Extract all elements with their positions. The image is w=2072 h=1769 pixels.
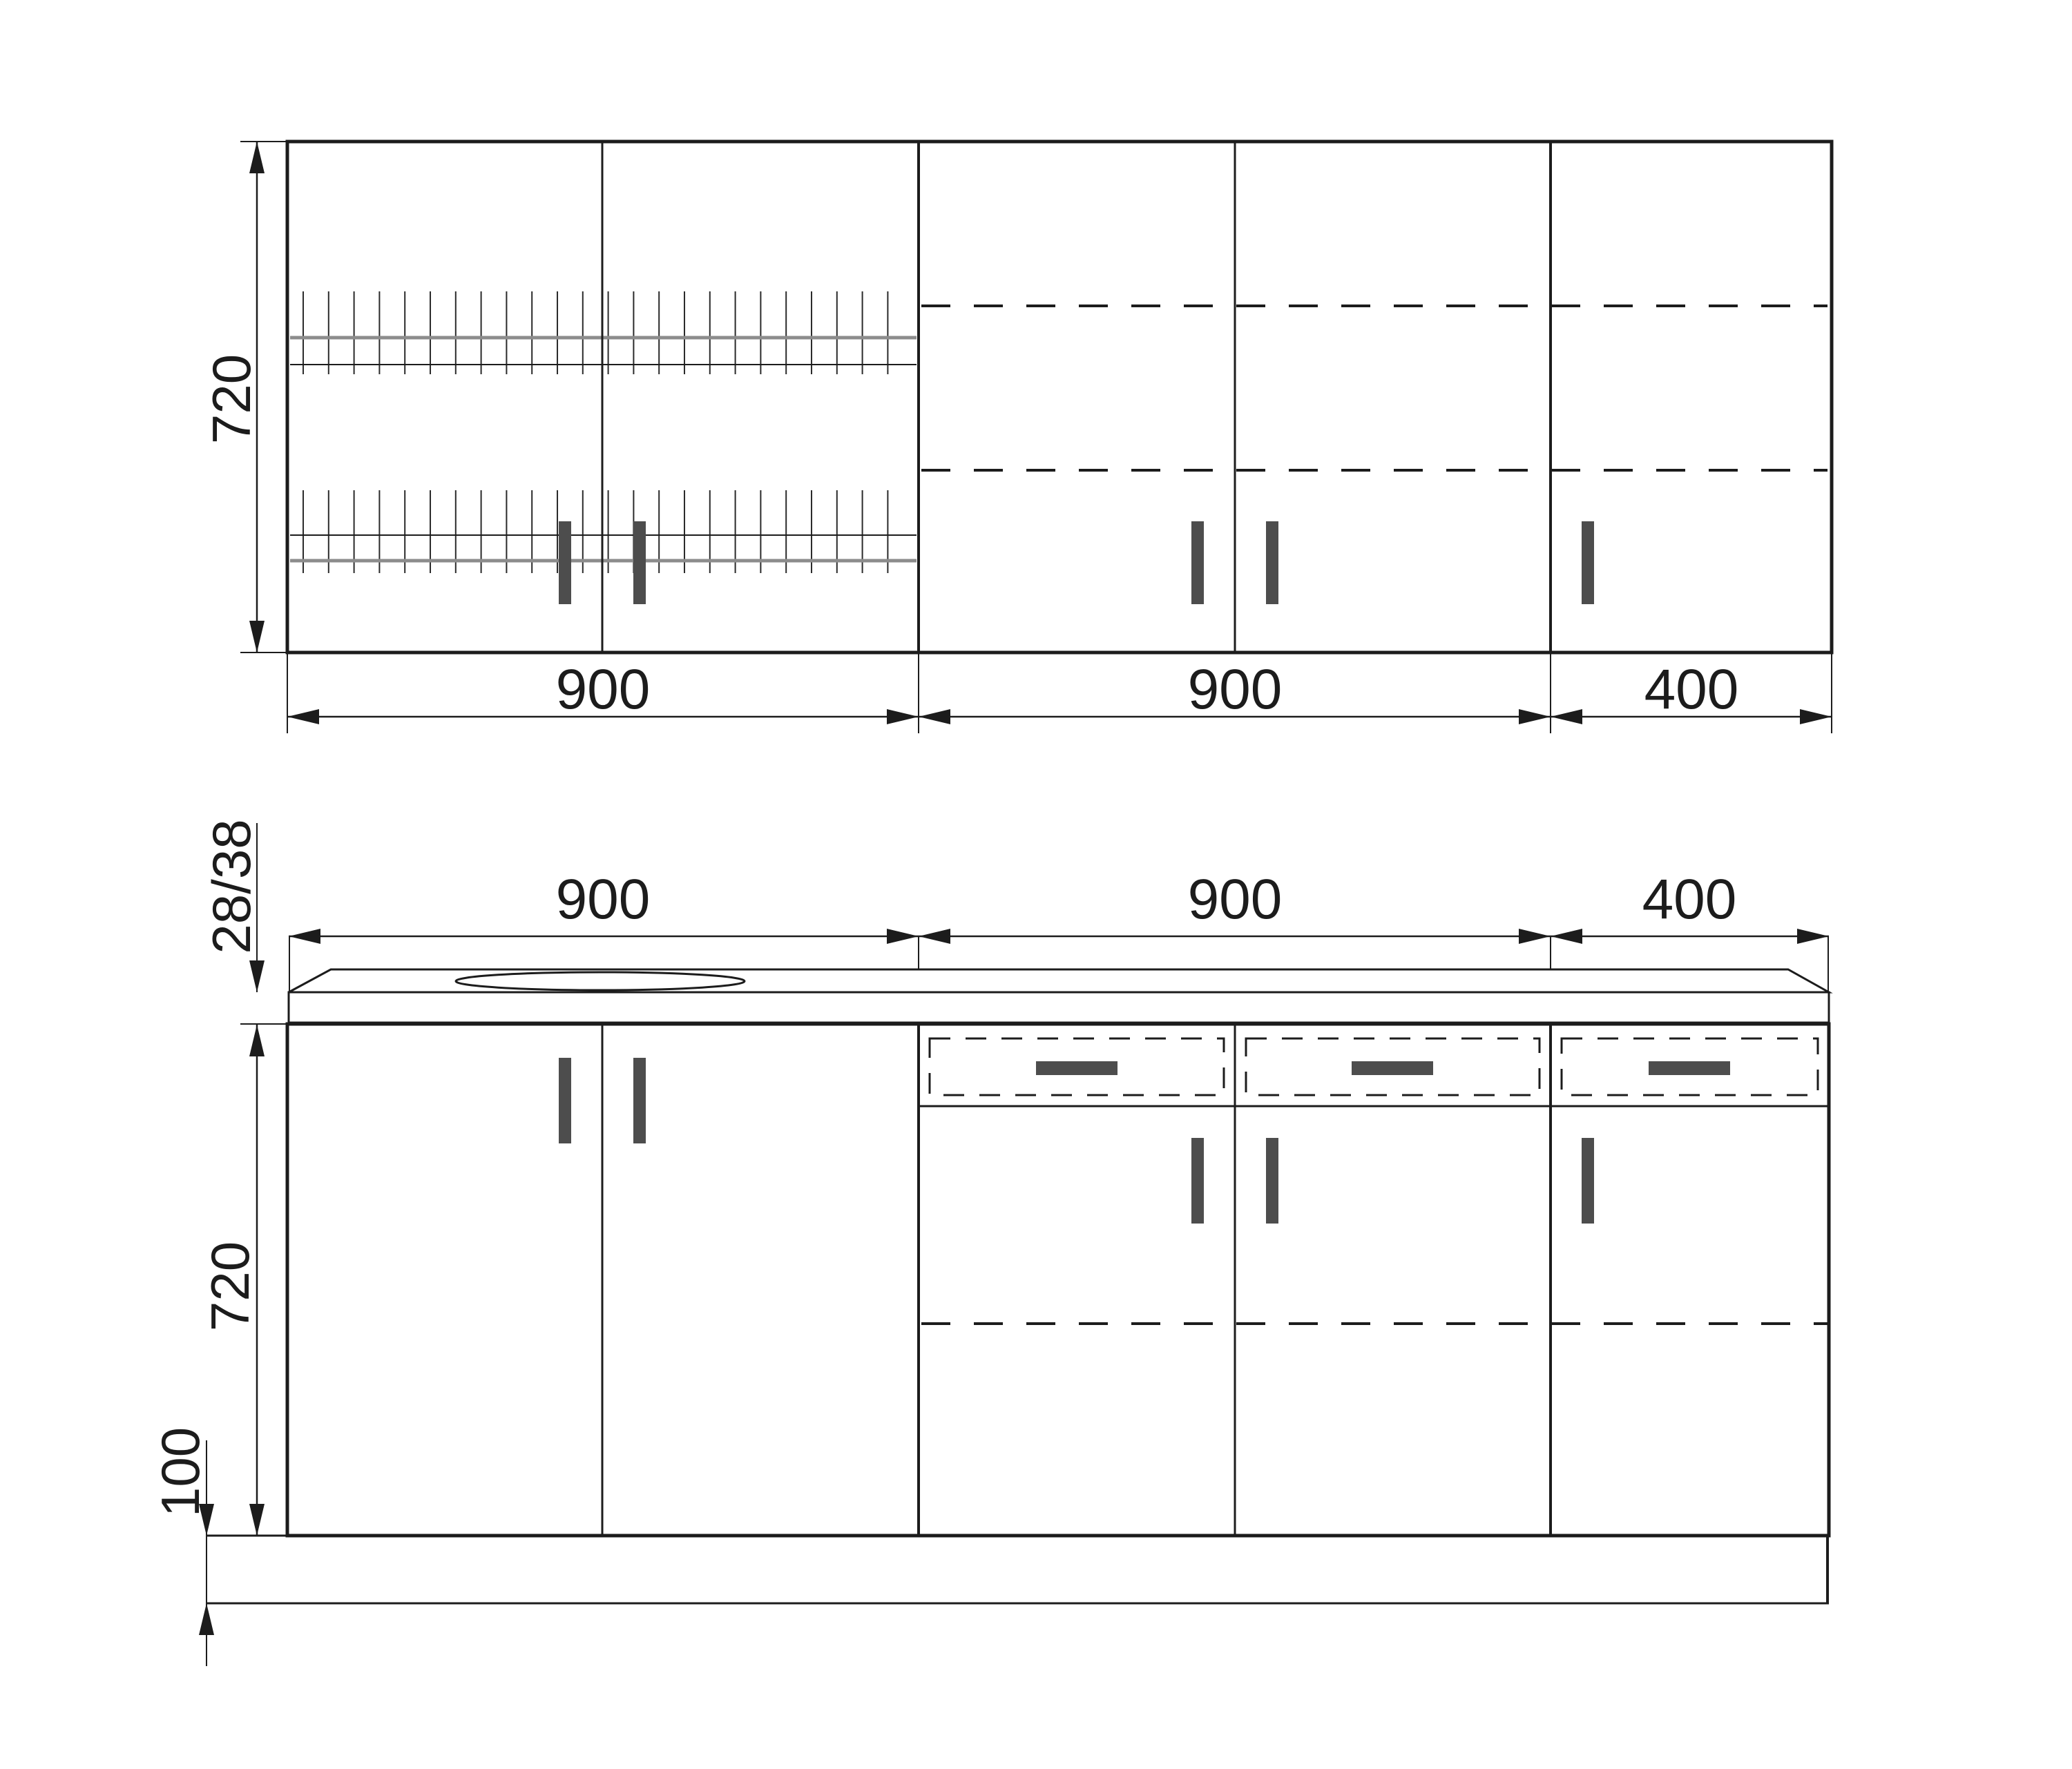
plinth-height-label: 100 bbox=[150, 1427, 211, 1517]
arrowhead-left bbox=[289, 929, 320, 944]
wall-door-handle bbox=[1582, 521, 1594, 604]
countertop-front-edge bbox=[289, 992, 1829, 1023]
counter-width-label-1: 900 bbox=[556, 868, 651, 931]
arrowhead-left bbox=[287, 709, 319, 724]
base-door-handle bbox=[559, 1058, 571, 1143]
arrowhead-right bbox=[1519, 929, 1551, 944]
arrowhead-left bbox=[1551, 709, 1582, 724]
wall-cabinet-row bbox=[287, 142, 1832, 652]
drawer-handle bbox=[1352, 1061, 1433, 1075]
base-row-top-dimensions: 900 900 400 28/38 bbox=[201, 819, 1829, 992]
drawing-canvas: 720 900 900 400 900 900 400 28 bbox=[0, 0, 2072, 1769]
sink-outline bbox=[456, 972, 745, 990]
countertop bbox=[289, 969, 1829, 1023]
base-door-handle bbox=[1582, 1138, 1594, 1224]
arrowhead-right bbox=[1519, 709, 1551, 724]
arrowhead-left bbox=[1551, 929, 1582, 944]
wall-door-handle bbox=[1266, 521, 1278, 604]
drawer-handle bbox=[1036, 1061, 1117, 1075]
counter-width-label-3: 400 bbox=[1642, 868, 1737, 931]
arrowhead-up bbox=[249, 142, 265, 173]
wall-cabinets-outline bbox=[287, 142, 1832, 652]
base-door-handle bbox=[1191, 1138, 1204, 1224]
arrowhead-left bbox=[919, 929, 950, 944]
wall-height-label: 720 bbox=[201, 354, 262, 444]
arrowhead-up bbox=[249, 1025, 265, 1056]
base-door-handle bbox=[633, 1058, 646, 1143]
countertop-thickness-label: 28/38 bbox=[201, 819, 262, 954]
base-cabinets-outline bbox=[287, 1024, 1829, 1536]
wall-door-handle bbox=[559, 521, 571, 604]
base-height-label: 720 bbox=[200, 1241, 260, 1331]
counter-width-label-2: 900 bbox=[1188, 868, 1283, 931]
kitchen-elevation-drawing: 720 900 900 400 900 900 400 28 bbox=[0, 0, 2072, 1769]
arrowhead-right bbox=[887, 929, 919, 944]
arrowhead-left bbox=[919, 709, 950, 724]
arrowhead-right bbox=[887, 709, 919, 724]
wall-width-label-3: 400 bbox=[1644, 658, 1739, 721]
base-row-side-dimensions: 720 100 bbox=[150, 1024, 286, 1666]
base-cabinet-row bbox=[207, 1024, 1829, 1603]
wall-door-handle bbox=[1191, 521, 1204, 604]
arrowhead-right bbox=[1800, 709, 1832, 724]
arrowhead-right bbox=[1797, 929, 1829, 944]
plate-rack-ticks-upper bbox=[302, 291, 912, 374]
arrowhead-down bbox=[249, 1504, 265, 1536]
drawer-handle bbox=[1649, 1061, 1730, 1075]
arrowhead-down bbox=[249, 621, 265, 652]
wall-width-label-2: 900 bbox=[1188, 658, 1283, 721]
base-door-handle bbox=[1266, 1138, 1278, 1224]
arrowhead-down bbox=[249, 960, 265, 992]
wall-door-handle bbox=[633, 521, 646, 604]
wall-width-label-1: 900 bbox=[556, 658, 651, 721]
